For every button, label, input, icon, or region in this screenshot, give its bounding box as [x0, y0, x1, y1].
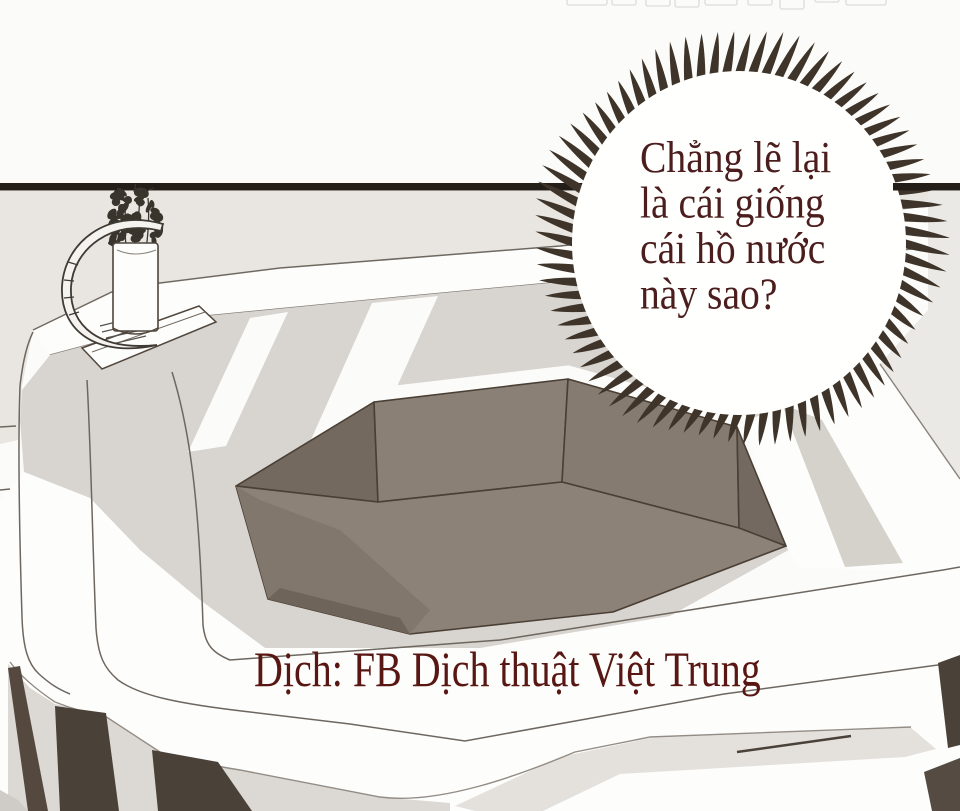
svg-text:này sao?: này sao? — [640, 271, 777, 319]
svg-text:là cái giống: là cái giống — [640, 180, 825, 228]
svg-text:Dịch: FB Dịch thuật Việt Trung: Dịch: FB Dịch thuật Việt Trung — [254, 642, 761, 697]
svg-text:cái hồ nước: cái hồ nước — [640, 225, 825, 273]
svg-text:Chẳng lẽ lại: Chẳng lẽ lại — [640, 134, 831, 182]
